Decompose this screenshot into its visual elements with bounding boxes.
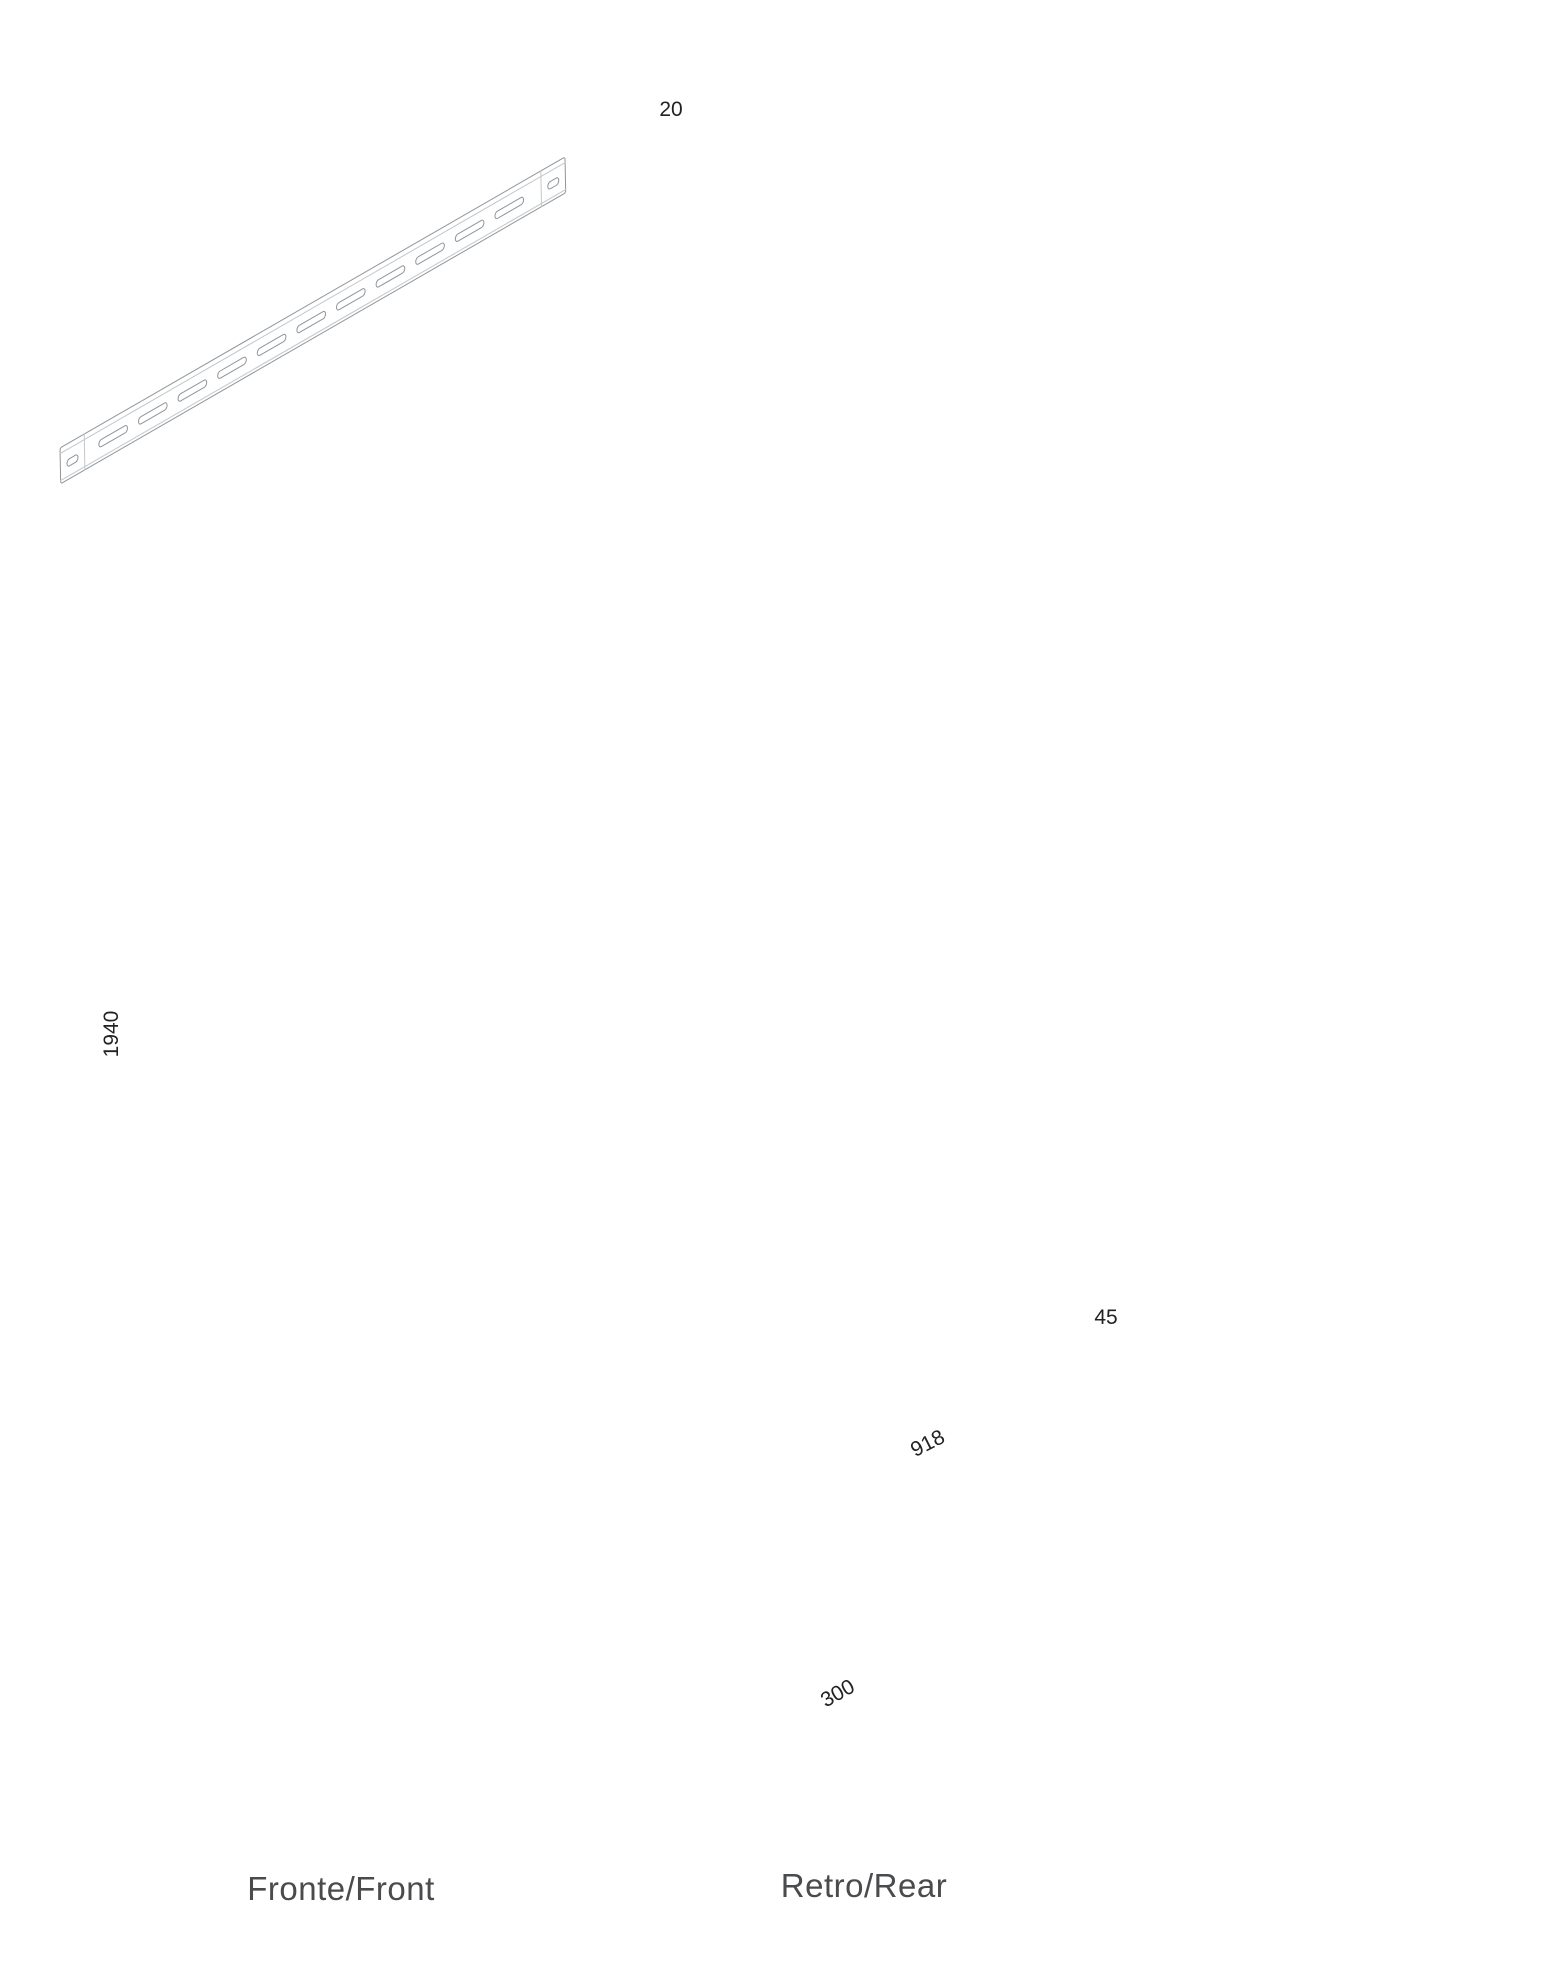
dimension-flange-depth: 20 <box>659 98 682 122</box>
caption-rear-view: Retro/Rear <box>781 1867 947 1905</box>
technical-drawing-canvas: 1940 20 45 918 300 Fronte/Front Retro/Re… <box>0 0 1560 1975</box>
dimension-panel-height: 1940 <box>100 1011 124 1058</box>
panel-drawing-svg <box>0 0 1560 1975</box>
dimension-rail-height: 45 <box>1094 1306 1117 1330</box>
caption-front-view: Fronte/Front <box>247 1870 435 1908</box>
front-top-rail <box>60 157 566 484</box>
